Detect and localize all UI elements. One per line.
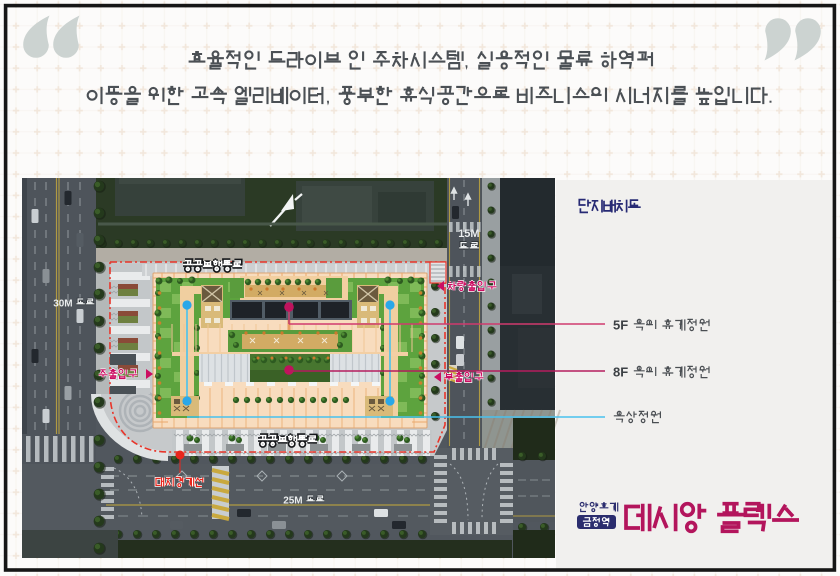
svg-text:15M: 15M [458,228,479,240]
svg-text:8F: 8F [613,365,628,380]
svg-text:30M: 30M [53,299,72,310]
svg-text:25M: 25M [283,496,302,507]
svg-text:5F: 5F [613,318,628,333]
